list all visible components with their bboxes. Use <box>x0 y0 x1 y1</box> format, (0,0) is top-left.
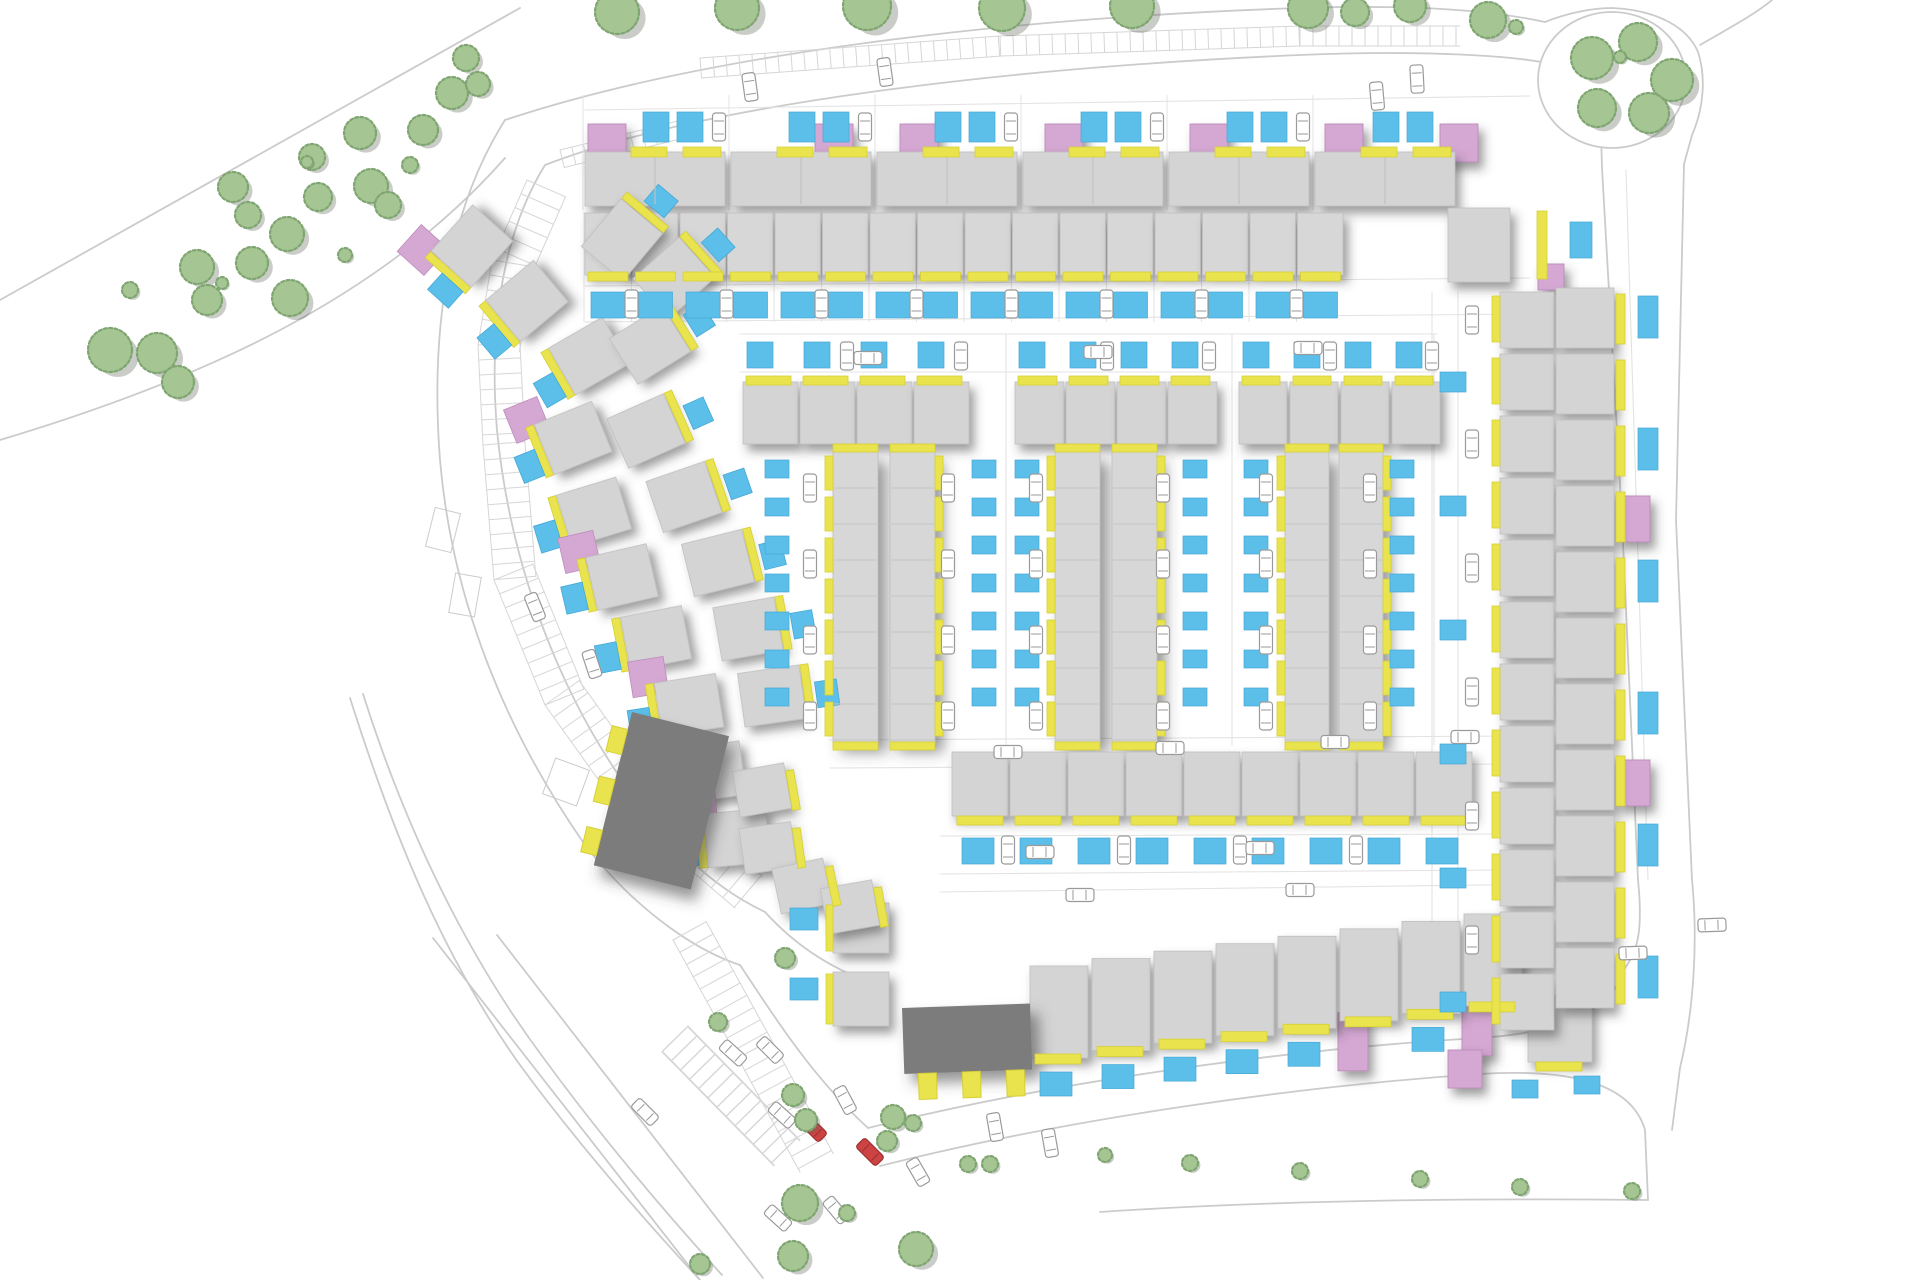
parking-space <box>972 688 996 706</box>
parking-bay-rail <box>533 564 584 689</box>
house <box>1155 213 1201 275</box>
entrance-strip <box>803 376 848 385</box>
entrance-strip <box>1111 272 1151 281</box>
house <box>1290 382 1338 444</box>
car-icon <box>1466 306 1479 334</box>
house <box>1154 951 1212 1043</box>
car-icon <box>804 626 817 654</box>
house <box>1500 602 1554 658</box>
house <box>1500 912 1554 968</box>
entrance-strip <box>1157 579 1165 613</box>
parking-bay-tick <box>856 47 858 67</box>
car-body <box>1466 678 1479 706</box>
entrance-strip <box>1301 272 1341 281</box>
car-body <box>1026 846 1054 859</box>
apartment-building <box>902 1004 1033 1100</box>
parking-space <box>686 292 720 318</box>
road-line <box>1700 0 1772 45</box>
parking-space <box>1638 692 1658 734</box>
house <box>1556 288 1614 348</box>
house <box>870 213 916 275</box>
house <box>1168 382 1217 444</box>
house <box>914 382 969 444</box>
entrance-strip <box>1069 147 1105 157</box>
parking-space <box>723 468 752 500</box>
car-icon <box>1195 290 1208 318</box>
car-body <box>1260 626 1273 654</box>
car-icon <box>804 550 817 578</box>
car-icon <box>942 626 955 654</box>
parking-bay-tick <box>804 50 806 70</box>
car-body <box>910 290 923 318</box>
entrance-strip <box>1063 272 1103 281</box>
car-body <box>1030 474 1043 502</box>
house <box>1068 752 1124 816</box>
tree-icon <box>881 1105 905 1129</box>
entrance-strip <box>1616 822 1625 872</box>
car-icon <box>1260 474 1273 502</box>
parking-space <box>1638 824 1658 866</box>
site-plan-svg <box>0 0 1920 1280</box>
car-body <box>833 1085 858 1116</box>
house <box>1030 966 1088 1058</box>
car-body <box>942 626 955 654</box>
car-icon <box>877 57 894 87</box>
entrance-strip <box>1112 742 1157 750</box>
car-icon <box>1364 474 1377 502</box>
car-body <box>1260 474 1273 502</box>
parking-space <box>1440 992 1466 1012</box>
tree-icon <box>775 948 795 968</box>
entrance-strip <box>1492 730 1500 776</box>
parking-bay-tick <box>727 1020 760 1038</box>
entrance-strip <box>1189 816 1235 825</box>
entrance-strip <box>935 579 943 613</box>
tree-icon <box>304 183 332 211</box>
entrance-strip <box>1616 624 1625 674</box>
parking-space <box>734 292 768 318</box>
car-icon <box>854 352 882 365</box>
car-body <box>1466 554 1479 582</box>
tree-icon <box>1182 1155 1198 1171</box>
parking-space <box>1390 460 1414 478</box>
entrance-strip <box>1616 888 1625 938</box>
entrance-strip <box>825 538 833 572</box>
car-icon <box>841 342 854 370</box>
car-body <box>1698 918 1726 932</box>
tree-icon <box>466 72 490 96</box>
car-body <box>1030 626 1043 654</box>
parking-space <box>790 978 818 1000</box>
parking-bay-tick <box>1182 30 1183 50</box>
entrance-strip <box>825 579 833 613</box>
lot-line <box>940 834 1500 836</box>
house <box>965 213 1011 275</box>
road-line <box>497 935 763 1278</box>
car-icon <box>1466 554 1479 582</box>
parking-space <box>1209 292 1243 318</box>
parking-space <box>789 112 815 142</box>
car-icon <box>1260 626 1273 654</box>
entrance-strip <box>825 661 833 695</box>
car-body <box>804 550 817 578</box>
car-body <box>854 352 882 365</box>
entrance-strip <box>833 742 878 750</box>
tree-icon <box>960 1156 976 1172</box>
car-icon <box>1619 946 1647 960</box>
house <box>732 763 791 817</box>
house <box>1242 752 1298 816</box>
parking-bay-tick <box>830 49 832 69</box>
parking-bay-tick <box>1221 29 1222 49</box>
parking-space <box>765 612 789 630</box>
tree-icon <box>402 157 418 173</box>
house <box>681 529 754 596</box>
parking-bay-tick <box>488 501 530 504</box>
parking-space <box>1040 1072 1072 1096</box>
parking-bay-tick <box>1156 31 1157 51</box>
entrance-strip <box>1492 668 1500 714</box>
parking-bay-tick <box>1039 35 1040 55</box>
car-body <box>1005 113 1018 141</box>
entrance-strip <box>631 147 667 157</box>
car-icon <box>1151 113 1164 141</box>
car-body <box>804 626 817 654</box>
car-icon <box>986 1112 1004 1142</box>
tree-icon <box>180 250 214 284</box>
house <box>833 972 889 1026</box>
parking-space <box>1261 112 1287 142</box>
car-body <box>1157 474 1170 502</box>
parking-space <box>972 536 996 554</box>
house <box>1108 213 1154 275</box>
car-body <box>994 746 1022 759</box>
car-body <box>1156 742 1184 755</box>
car-icon <box>1466 430 1479 458</box>
entrance-strip <box>968 272 1008 281</box>
entrance-strip <box>890 444 935 452</box>
house <box>1556 618 1614 678</box>
tree-icon <box>272 280 308 316</box>
car-icon <box>742 72 759 102</box>
tree-icon <box>1470 2 1506 38</box>
house <box>1556 552 1614 612</box>
car-icon <box>1041 1128 1059 1158</box>
parking-bay-tick <box>479 358 521 360</box>
parking-space <box>1256 292 1290 318</box>
entrance-strip <box>1242 376 1280 385</box>
entrance-strip <box>1018 376 1057 385</box>
car-icon <box>1466 802 1479 830</box>
car-body <box>742 72 759 102</box>
house <box>1500 664 1554 720</box>
house <box>952 752 1008 816</box>
entrance-strip <box>1339 444 1383 452</box>
tree-icon <box>301 156 313 168</box>
house <box>1556 684 1614 744</box>
car-body <box>1151 113 1164 141</box>
road-line <box>1672 164 1695 1130</box>
parking-bay-tick <box>998 36 1000 56</box>
parking-bay-tick <box>1195 30 1196 50</box>
parking-bay-tick <box>571 717 605 741</box>
house <box>1203 213 1249 275</box>
entrance-strip <box>1047 702 1055 736</box>
parking-space <box>639 292 673 318</box>
tree-icon <box>1292 1163 1308 1179</box>
parking-space <box>683 397 714 430</box>
terrace-row <box>1285 452 1329 742</box>
entrance-strip <box>1305 816 1351 825</box>
car-icon <box>1294 342 1322 355</box>
parking-space <box>1368 838 1400 864</box>
entrance-strip <box>1047 538 1055 572</box>
car-icon <box>1005 113 1018 141</box>
car-icon <box>1246 842 1274 855</box>
car-icon <box>1369 81 1384 110</box>
car-body <box>1246 842 1274 855</box>
entrance-strip <box>1267 147 1305 157</box>
car-body <box>1066 889 1094 902</box>
tree-icon <box>690 1254 710 1274</box>
parking-bay-tick <box>907 43 909 63</box>
parking-bay-tick <box>1026 35 1027 55</box>
entrance-strip <box>1253 272 1293 281</box>
entrance-strip <box>1158 272 1198 281</box>
entrance-strip <box>1293 376 1331 385</box>
tree-icon <box>338 248 352 262</box>
house <box>1500 354 1554 410</box>
car-icon <box>994 746 1022 759</box>
car-icon <box>1157 702 1170 730</box>
house <box>1278 936 1336 1028</box>
house <box>1500 478 1554 534</box>
car-body <box>841 342 854 370</box>
tree-icon <box>839 1205 855 1221</box>
parking-space <box>1114 292 1148 318</box>
house <box>1500 788 1554 844</box>
entrance-strip <box>833 444 878 452</box>
parking-space <box>972 650 996 668</box>
car-icon <box>1426 342 1439 370</box>
entrance-strip <box>1112 444 1157 452</box>
parking-bay-tick <box>1143 31 1144 51</box>
parking-bay-tick <box>1078 33 1079 53</box>
car-icon <box>1002 836 1015 864</box>
tree-icon <box>1624 1183 1640 1199</box>
terrace-row <box>1055 452 1100 742</box>
parking-space <box>1570 222 1592 258</box>
entrance-strip <box>1047 661 1055 695</box>
car-icon <box>1157 626 1170 654</box>
entrance-strip <box>1047 579 1055 613</box>
entrance-strip <box>1055 444 1100 452</box>
house <box>1060 213 1106 275</box>
car-icon <box>1466 678 1479 706</box>
road-line <box>433 938 700 1280</box>
car-icon <box>1203 342 1216 370</box>
parking-space <box>1440 868 1466 888</box>
parking-space <box>1373 112 1399 142</box>
entrance-strip <box>1363 816 1409 825</box>
tree-icon <box>162 366 194 398</box>
house <box>1448 208 1510 282</box>
entrance-strip <box>1492 420 1500 466</box>
parking-bay-tick <box>1234 28 1235 48</box>
entrance-strip <box>1277 579 1285 613</box>
car-icon <box>1324 342 1337 370</box>
car-icon <box>1260 702 1273 730</box>
tree-icon <box>192 285 222 315</box>
car-icon <box>1290 290 1303 318</box>
parking-bay-tick <box>817 49 819 69</box>
entrance-strip <box>1016 272 1056 281</box>
parking-space <box>972 460 996 478</box>
house <box>1500 726 1554 782</box>
car-body <box>804 474 817 502</box>
car-body <box>1364 702 1377 730</box>
entrance-strip <box>935 497 943 531</box>
car-body <box>1118 836 1131 864</box>
car-icon <box>1364 550 1377 578</box>
parking-space <box>643 112 669 142</box>
house <box>1556 750 1614 810</box>
car-icon <box>942 550 955 578</box>
entrance-strip <box>1492 296 1500 342</box>
tree-icon <box>1394 0 1426 22</box>
tree-icon <box>122 282 138 298</box>
car-body <box>756 1036 785 1065</box>
house <box>1556 882 1614 942</box>
tree-icon <box>453 45 479 71</box>
parking-bay-rail <box>662 1051 774 1165</box>
parking-bay-outline <box>543 758 590 806</box>
car-body <box>1466 926 1479 954</box>
entrance-strip <box>588 272 628 281</box>
entrance-strip <box>1006 1070 1025 1097</box>
parking-space <box>765 498 789 516</box>
entrance-strip <box>1395 376 1433 385</box>
car-body <box>1466 802 1479 830</box>
parking-bay-tick <box>1104 33 1105 53</box>
parking-space <box>969 112 995 142</box>
entrance-strip <box>918 1073 937 1100</box>
car-icon <box>1286 884 1314 897</box>
car-icon <box>859 113 872 141</box>
arc-plot <box>607 379 718 468</box>
car-icon <box>955 342 968 370</box>
parking-space <box>804 342 830 368</box>
parking-space <box>972 574 996 592</box>
car-body <box>1466 306 1479 334</box>
car-body <box>1321 736 1349 749</box>
parking-space <box>1390 498 1414 516</box>
car-icon <box>1030 550 1043 578</box>
entrance-strip <box>826 905 833 951</box>
car-icon <box>713 113 726 141</box>
parking-space <box>1194 838 1226 864</box>
parking-space <box>924 292 958 318</box>
parking-space <box>1440 744 1466 764</box>
entrance-strip <box>778 272 818 281</box>
house <box>1239 382 1287 444</box>
parking-space <box>1390 612 1414 630</box>
tree-icon <box>1629 93 1669 133</box>
tree-icon <box>235 202 261 228</box>
parking-bay-tick <box>765 53 767 73</box>
entrance-strip <box>1492 854 1500 900</box>
parking-space <box>1345 342 1371 368</box>
car-icon <box>1157 474 1170 502</box>
parking-space <box>1638 560 1658 602</box>
parking-bay-tick <box>1013 36 1014 56</box>
tree-icon <box>782 1185 818 1221</box>
entrance-strip <box>1492 792 1500 838</box>
entrance-strip <box>1035 1054 1081 1064</box>
house <box>1298 213 1344 275</box>
parking-bay-tick <box>946 40 948 60</box>
parking-bay-tick <box>707 983 740 1001</box>
entrance-strip <box>1616 690 1625 740</box>
entrance-strip <box>829 147 867 157</box>
tree-icon <box>905 1115 921 1131</box>
house <box>1556 354 1614 414</box>
entrance-strip <box>1616 954 1625 1004</box>
parking-bay-tick <box>673 922 706 940</box>
entrance-strip <box>1383 702 1391 736</box>
parking-space <box>765 574 789 592</box>
entrance-strip <box>1055 742 1100 750</box>
car-body <box>877 57 894 87</box>
road-line <box>0 158 505 440</box>
entrance-strip <box>1277 661 1285 695</box>
car-icon <box>942 702 955 730</box>
entrance-strip <box>1277 538 1285 572</box>
parking-space <box>1243 342 1269 368</box>
car-icon <box>625 290 638 318</box>
parking-space <box>591 292 625 318</box>
parking-space <box>1440 372 1466 392</box>
house <box>1010 752 1066 816</box>
arc-plot <box>392 188 513 310</box>
car-body <box>1002 836 1015 864</box>
entrance-strip <box>1361 147 1397 157</box>
house <box>1358 752 1414 816</box>
entrance-strip <box>825 497 833 531</box>
tree-icon <box>782 1084 804 1106</box>
entrance-strip <box>825 702 833 736</box>
parking-space <box>1396 342 1422 368</box>
entrance-strip <box>1285 444 1329 452</box>
entrance-strip <box>1015 816 1061 825</box>
parking-bay-tick <box>1000 36 1001 56</box>
parking-space <box>1390 650 1414 668</box>
parking-bay-tick <box>554 693 588 717</box>
entrance-strip <box>1283 1024 1329 1034</box>
parking-bay-tick <box>1169 30 1170 50</box>
tree-icon <box>270 217 304 251</box>
parking-space <box>1227 112 1253 142</box>
car-body <box>1294 342 1322 355</box>
car-body <box>1041 1128 1059 1158</box>
car-icon <box>1698 918 1726 932</box>
parking-bay-tick <box>869 46 871 66</box>
house <box>1015 382 1064 444</box>
house <box>775 213 821 275</box>
entrance-strip <box>1421 816 1467 825</box>
entrance-strip <box>957 816 1003 825</box>
lot-line <box>940 870 1500 874</box>
